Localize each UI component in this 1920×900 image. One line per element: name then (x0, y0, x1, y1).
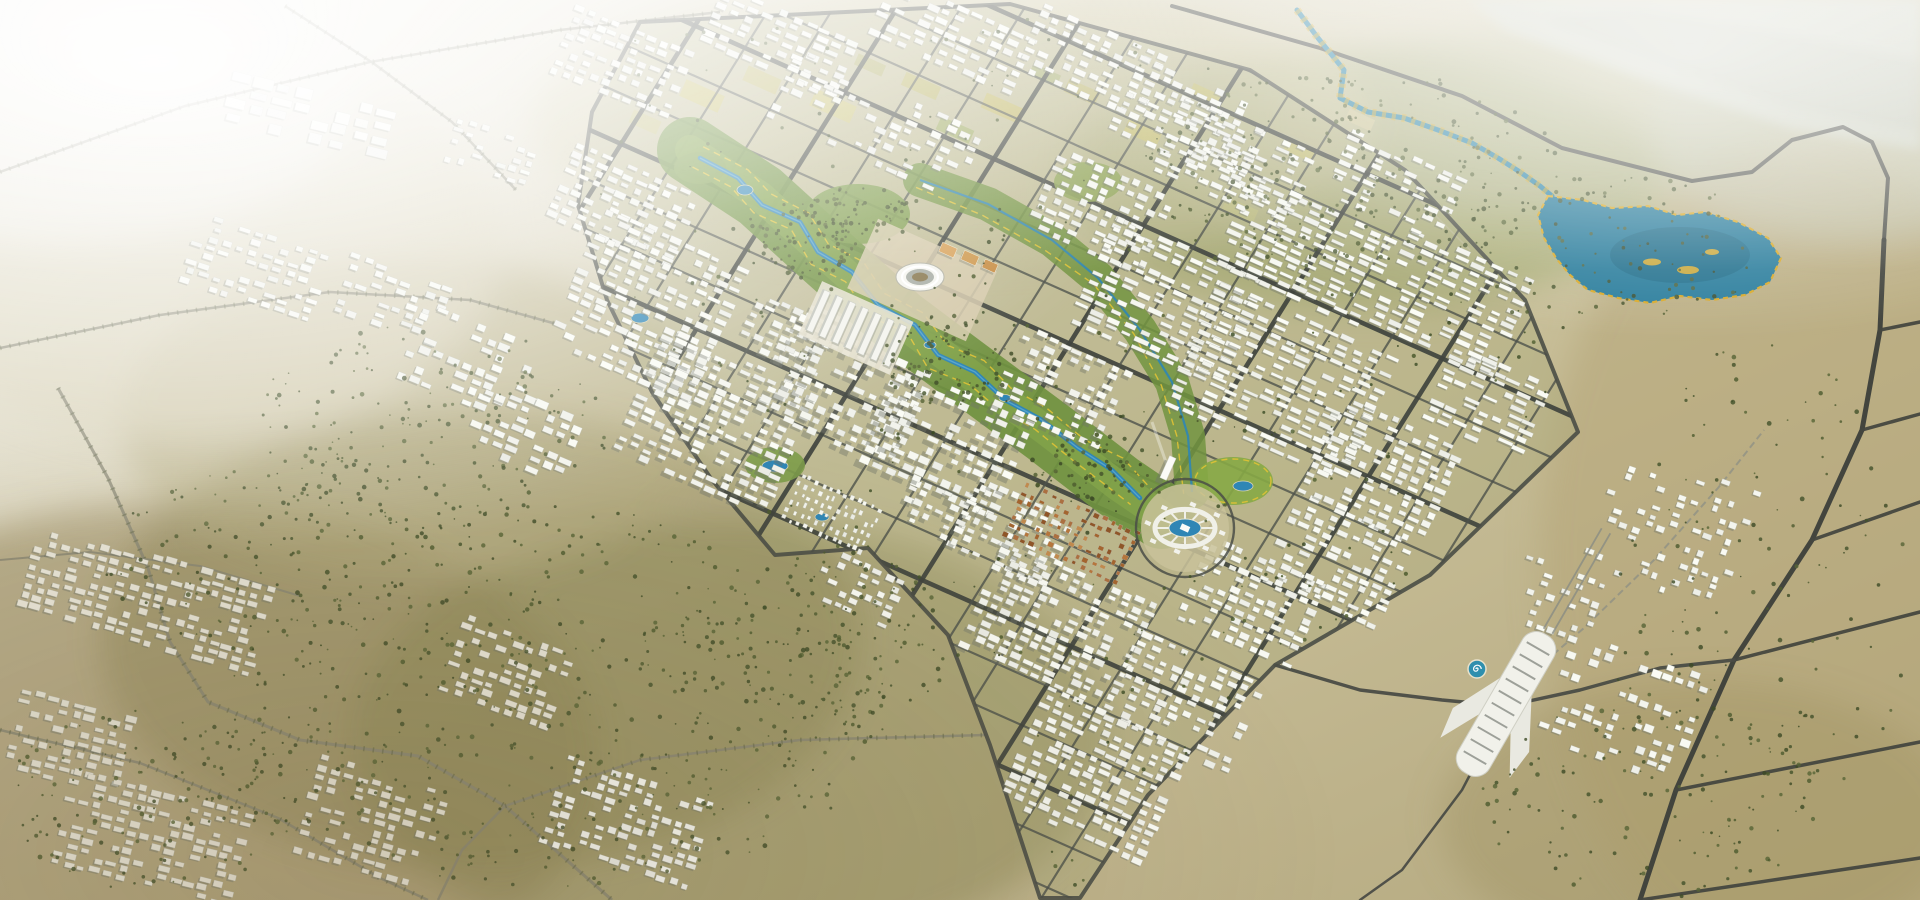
masterplan-aerial-view (0, 0, 1920, 900)
aerial-city-rendering (0, 0, 1920, 900)
corner-fog-haze (0, 0, 1920, 900)
